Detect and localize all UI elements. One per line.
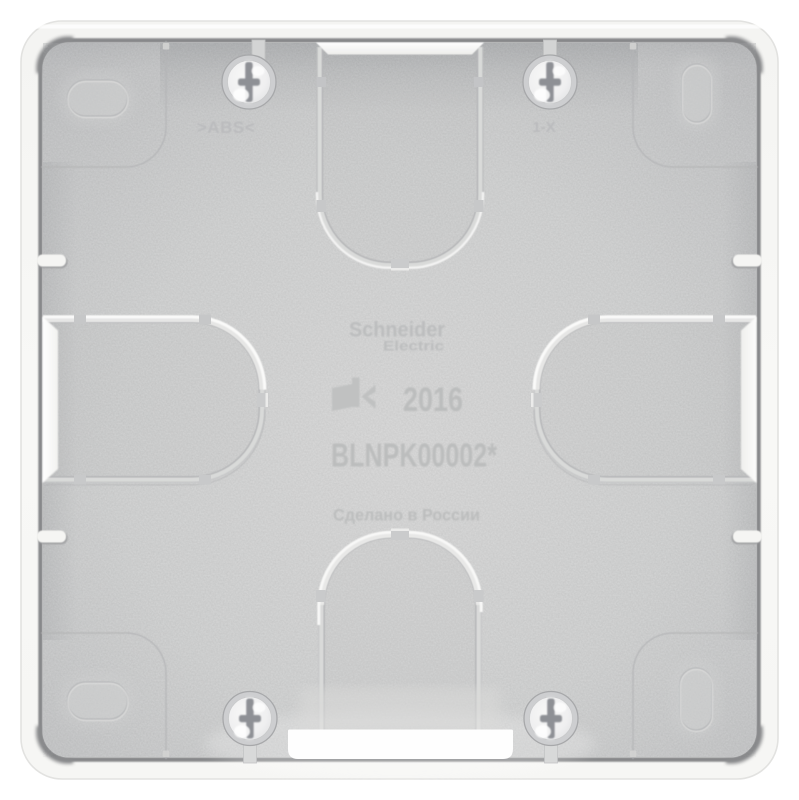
svg-text:Electric: Electric — [383, 339, 445, 354]
svg-text:Сделано в России: Сделано в России — [333, 506, 480, 525]
svg-text:1-X: 1-X — [532, 119, 555, 136]
svg-text:>ABS<: >ABS< — [197, 118, 255, 137]
svg-text:2016: 2016 — [403, 381, 463, 419]
svg-text:BLNPK00002*: BLNPK00002* — [331, 437, 497, 474]
